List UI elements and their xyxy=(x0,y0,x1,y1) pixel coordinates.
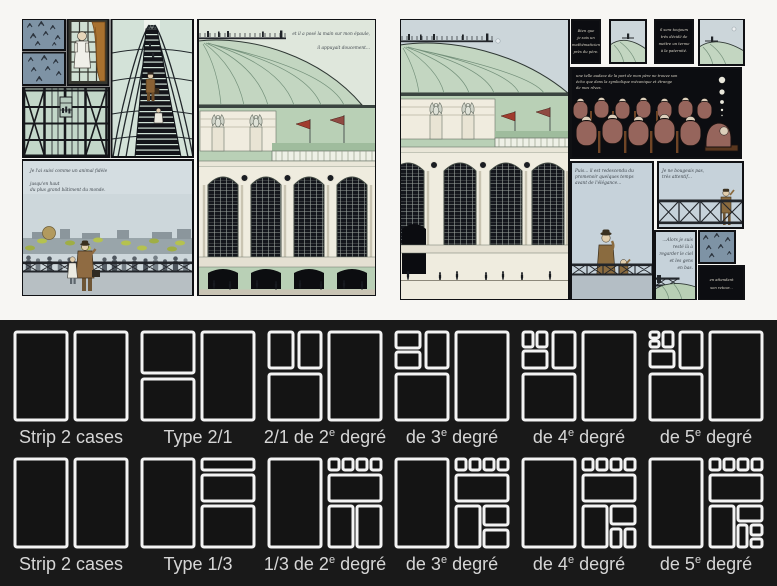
layout-panel-rect xyxy=(710,332,762,420)
panel-balcony-crowd: Je l'ai suivi comme un animal fidèle jus… xyxy=(22,160,193,296)
layout-diagram-svg xyxy=(648,330,764,422)
layout-panel-rect xyxy=(426,332,448,368)
caption-text: ...Alors je suis xyxy=(662,238,693,243)
layout-panel-rect xyxy=(663,332,673,347)
caption-text: Je l'ai suivi comme un animal fidèle xyxy=(29,169,108,174)
panel-caption-2: il sera toujours très décidé de mettre u… xyxy=(655,20,693,63)
panel-glass-lattice xyxy=(22,88,109,158)
layout-panel-rect xyxy=(343,459,353,470)
layout-diagram-svg xyxy=(521,330,637,422)
panel-x-rail: Je ne bougeais pas, très attentif... xyxy=(658,162,743,228)
panel-dome-slice-a xyxy=(610,20,646,63)
panel-dome-facade-right-page xyxy=(400,19,569,300)
layout-panel-rect xyxy=(269,332,293,368)
layout-panel-rect xyxy=(484,530,508,547)
layout-panel-rect xyxy=(75,459,127,547)
layout-diagram: 1/3 de 2e degré xyxy=(262,457,388,575)
layout-label: de 3e degré xyxy=(406,554,498,575)
caption-text: écho que dans la symbolique mécanique et… xyxy=(576,80,673,84)
layout-panel-rect xyxy=(329,459,339,470)
layout-panel-rect xyxy=(625,529,635,547)
layout-panel-rect xyxy=(484,459,494,470)
layout-panel-rect xyxy=(650,341,659,347)
caption-text: très décidé de xyxy=(661,35,688,39)
caption-text: Je ne bougeais pas, xyxy=(661,169,705,174)
layout-panel-rect xyxy=(269,459,321,547)
layout-panel-rect xyxy=(498,459,508,470)
layout-panel-rect xyxy=(583,332,635,420)
layout-diagram: Strip 2 cases xyxy=(8,330,134,448)
caption-text: il sera toujours xyxy=(660,28,688,32)
layout-panel-rect xyxy=(553,332,575,368)
layout-panel-rect xyxy=(329,475,381,501)
layout-label: de 4e degré xyxy=(533,427,625,448)
layout-panel-rect xyxy=(202,506,254,547)
panel-man-child: Puis... il est redescendu du promenoir q… xyxy=(571,162,653,300)
layout-panel-rect xyxy=(202,332,254,420)
layout-panel-rect xyxy=(357,506,381,547)
panel-birds-right xyxy=(699,231,735,263)
layout-panel-rect xyxy=(15,459,67,547)
layout-label: 1/3 de 2e degré xyxy=(264,554,386,575)
layout-diagram: de 4e degré xyxy=(516,457,642,575)
layout-panel-rect xyxy=(142,332,194,373)
layout-diagram: 2/1 de 2e degré xyxy=(262,330,388,448)
layout-diagram-svg xyxy=(267,457,383,549)
layout-label: de 4e degré xyxy=(533,554,625,575)
layout-panel-rect xyxy=(396,459,448,547)
layout-panel-rect xyxy=(611,506,635,524)
panel-dome-facade: et il a posé la main sur mon épaule, il … xyxy=(198,19,376,296)
layout-panel-rect xyxy=(523,459,575,547)
layout-panel-rect xyxy=(484,506,508,525)
caption-text: très attentif... xyxy=(662,175,692,180)
caption-text: regarder le ciel xyxy=(659,252,693,257)
layout-panel-rect xyxy=(329,506,353,547)
caption-text: en attendant xyxy=(710,278,734,282)
comic-pages-area: Je l'ai suivi comme un animal fidèle jus… xyxy=(0,0,777,320)
layout-panel-rect xyxy=(470,459,480,470)
layout-diagram: Type 2/1 xyxy=(135,330,261,448)
layout-panel-rect xyxy=(710,475,762,501)
layout-diagram-svg xyxy=(394,457,510,549)
layout-row-2: Strip 2 casesType 1/31/3 de 2e degréde 3… xyxy=(0,457,777,575)
layout-panel-rect xyxy=(269,374,321,420)
layout-panel-rect xyxy=(396,332,420,348)
layout-panel-rect xyxy=(650,459,702,547)
caption-text: jusqu'en haut xyxy=(29,182,60,187)
layout-panel-rect xyxy=(597,459,607,470)
caption-text: il appuyait doucement... xyxy=(317,46,370,51)
layout-panel-rect xyxy=(583,459,593,470)
layout-diagram-svg xyxy=(267,330,383,422)
layout-panel-rect xyxy=(202,459,254,470)
layout-diagram-svg xyxy=(140,330,256,422)
caption-text: du plus grand bâtiment du monde. xyxy=(30,188,105,193)
layout-panel-rect xyxy=(625,459,635,470)
layout-label: Strip 2 cases xyxy=(19,427,123,448)
layout-label: Type 2/1 xyxy=(163,427,232,448)
layout-panel-rect xyxy=(202,475,254,501)
caption-text: son retour... xyxy=(710,286,733,290)
layout-panel-rect xyxy=(456,475,508,501)
layout-label: de 3e degré xyxy=(406,427,498,448)
caption-text: je sois un xyxy=(576,36,595,40)
caption-text: avant de l'élégance... xyxy=(575,181,621,186)
layout-panel-rect xyxy=(456,332,508,420)
caption-text: Puis... il est redescendu du xyxy=(574,169,634,174)
layout-panel-rect xyxy=(650,351,674,367)
layout-label: Strip 2 cases xyxy=(19,554,123,575)
layout-panel-rect xyxy=(523,374,575,420)
layout-panel-rect xyxy=(611,529,621,547)
layout-label: de 5e degré xyxy=(660,554,752,575)
layout-panel-rect xyxy=(724,459,734,470)
layout-panel-rect xyxy=(299,332,321,368)
layout-panel-rect xyxy=(650,374,702,420)
layout-diagram-svg xyxy=(140,457,256,549)
caption-text: resté là à xyxy=(673,245,694,250)
layout-panel-rect xyxy=(583,506,607,547)
layout-label: Type 1/3 xyxy=(163,554,232,575)
layout-panel-rect xyxy=(357,459,367,470)
layout-panel-rect xyxy=(15,332,67,420)
layout-panel-rect xyxy=(710,459,720,470)
panel-child-window xyxy=(68,19,109,85)
panel-caption-sky: ...Alors je suis resté là à regarder le … xyxy=(655,231,696,300)
layout-panel-rect xyxy=(142,459,194,547)
layout-panel-rect xyxy=(537,332,547,347)
layout-diagram-svg xyxy=(13,457,129,549)
caption-text: en bas. xyxy=(677,266,693,271)
layout-panel-rect xyxy=(680,332,702,368)
layout-panel-rect xyxy=(523,332,533,347)
figure-comic-layout-analysis: Je l'ai suivi comme un animal fidèle jus… xyxy=(0,0,777,586)
panel-caption-1: Bien que je sois un mathématicien près d… xyxy=(572,20,601,63)
layout-panel-rect xyxy=(710,506,734,547)
layout-diagram-svg xyxy=(521,457,637,549)
layout-diagram-svg xyxy=(394,330,510,422)
layout-diagram-svg xyxy=(13,330,129,422)
layout-panel-rect xyxy=(752,459,762,470)
caption-text: Bien que xyxy=(577,29,595,33)
layout-diagram: de 5e degré xyxy=(643,457,769,575)
layout-panel-rect xyxy=(456,459,466,470)
layout-panel-rect xyxy=(396,374,448,420)
layout-panel-rect xyxy=(456,506,480,547)
layout-diagram: Strip 2 cases xyxy=(8,457,134,575)
caption-text: une telle audace de la part de mon père … xyxy=(576,74,678,78)
layout-label: de 5e degré xyxy=(660,427,752,448)
layout-diagram: de 3e degré xyxy=(389,457,515,575)
caption-text: mettre un terme xyxy=(659,42,691,46)
layout-typology-area: Strip 2 casesType 2/12/1 de 2e degréde 3… xyxy=(0,320,777,586)
caption-text: à la paternité. xyxy=(661,49,687,53)
comic-page-right: Bien que je sois un mathématicien près d… xyxy=(400,19,745,300)
layout-panel-rect xyxy=(396,352,420,368)
layout-panel-rect xyxy=(75,332,127,420)
layout-panel-rect xyxy=(523,351,547,368)
layout-diagram-svg xyxy=(648,457,764,549)
layout-label: 2/1 de 2e degré xyxy=(264,427,386,448)
layout-panel-rect xyxy=(738,506,762,521)
layout-row-1: Strip 2 casesType 2/12/1 de 2e degréde 3… xyxy=(0,330,777,448)
layout-diagram: de 3e degré xyxy=(389,330,515,448)
panel-birds-lower xyxy=(22,53,65,86)
caption-text: et les gens xyxy=(670,259,694,264)
layout-diagram: de 4e degré xyxy=(516,330,642,448)
layout-panel-rect xyxy=(650,332,659,338)
layout-panel-rect xyxy=(738,459,748,470)
panel-dome-slice-b xyxy=(699,19,744,65)
layout-panel-rect xyxy=(329,332,381,420)
panel-birds-top xyxy=(22,19,65,50)
layout-panel-rect xyxy=(583,475,635,501)
caption-text: promenoir quelques temps xyxy=(575,175,634,180)
layout-diagram: de 5e degré xyxy=(643,330,769,448)
panel-stairwell xyxy=(112,19,194,157)
panel-audience: une telle audace de la part de mon père … xyxy=(571,68,741,158)
layout-panel-rect xyxy=(751,539,762,547)
panel-caption-waiting: en attendant son retour... xyxy=(699,266,744,300)
comic-page-left: Je l'ai suivi comme un animal fidèle jus… xyxy=(22,19,376,296)
layout-panel-rect xyxy=(738,525,747,547)
layout-panel-rect xyxy=(751,525,762,535)
caption-text: près du père. xyxy=(574,50,599,54)
caption-text: et il a posé la main sur mon épaule, xyxy=(292,32,370,37)
caption-text: de mes rêves. xyxy=(576,86,602,90)
layout-panel-rect xyxy=(142,379,194,420)
layout-panel-rect xyxy=(371,459,381,470)
layout-diagram: Type 1/3 xyxy=(135,457,261,575)
layout-panel-rect xyxy=(611,459,621,470)
caption-text: mathématicien xyxy=(572,43,601,47)
